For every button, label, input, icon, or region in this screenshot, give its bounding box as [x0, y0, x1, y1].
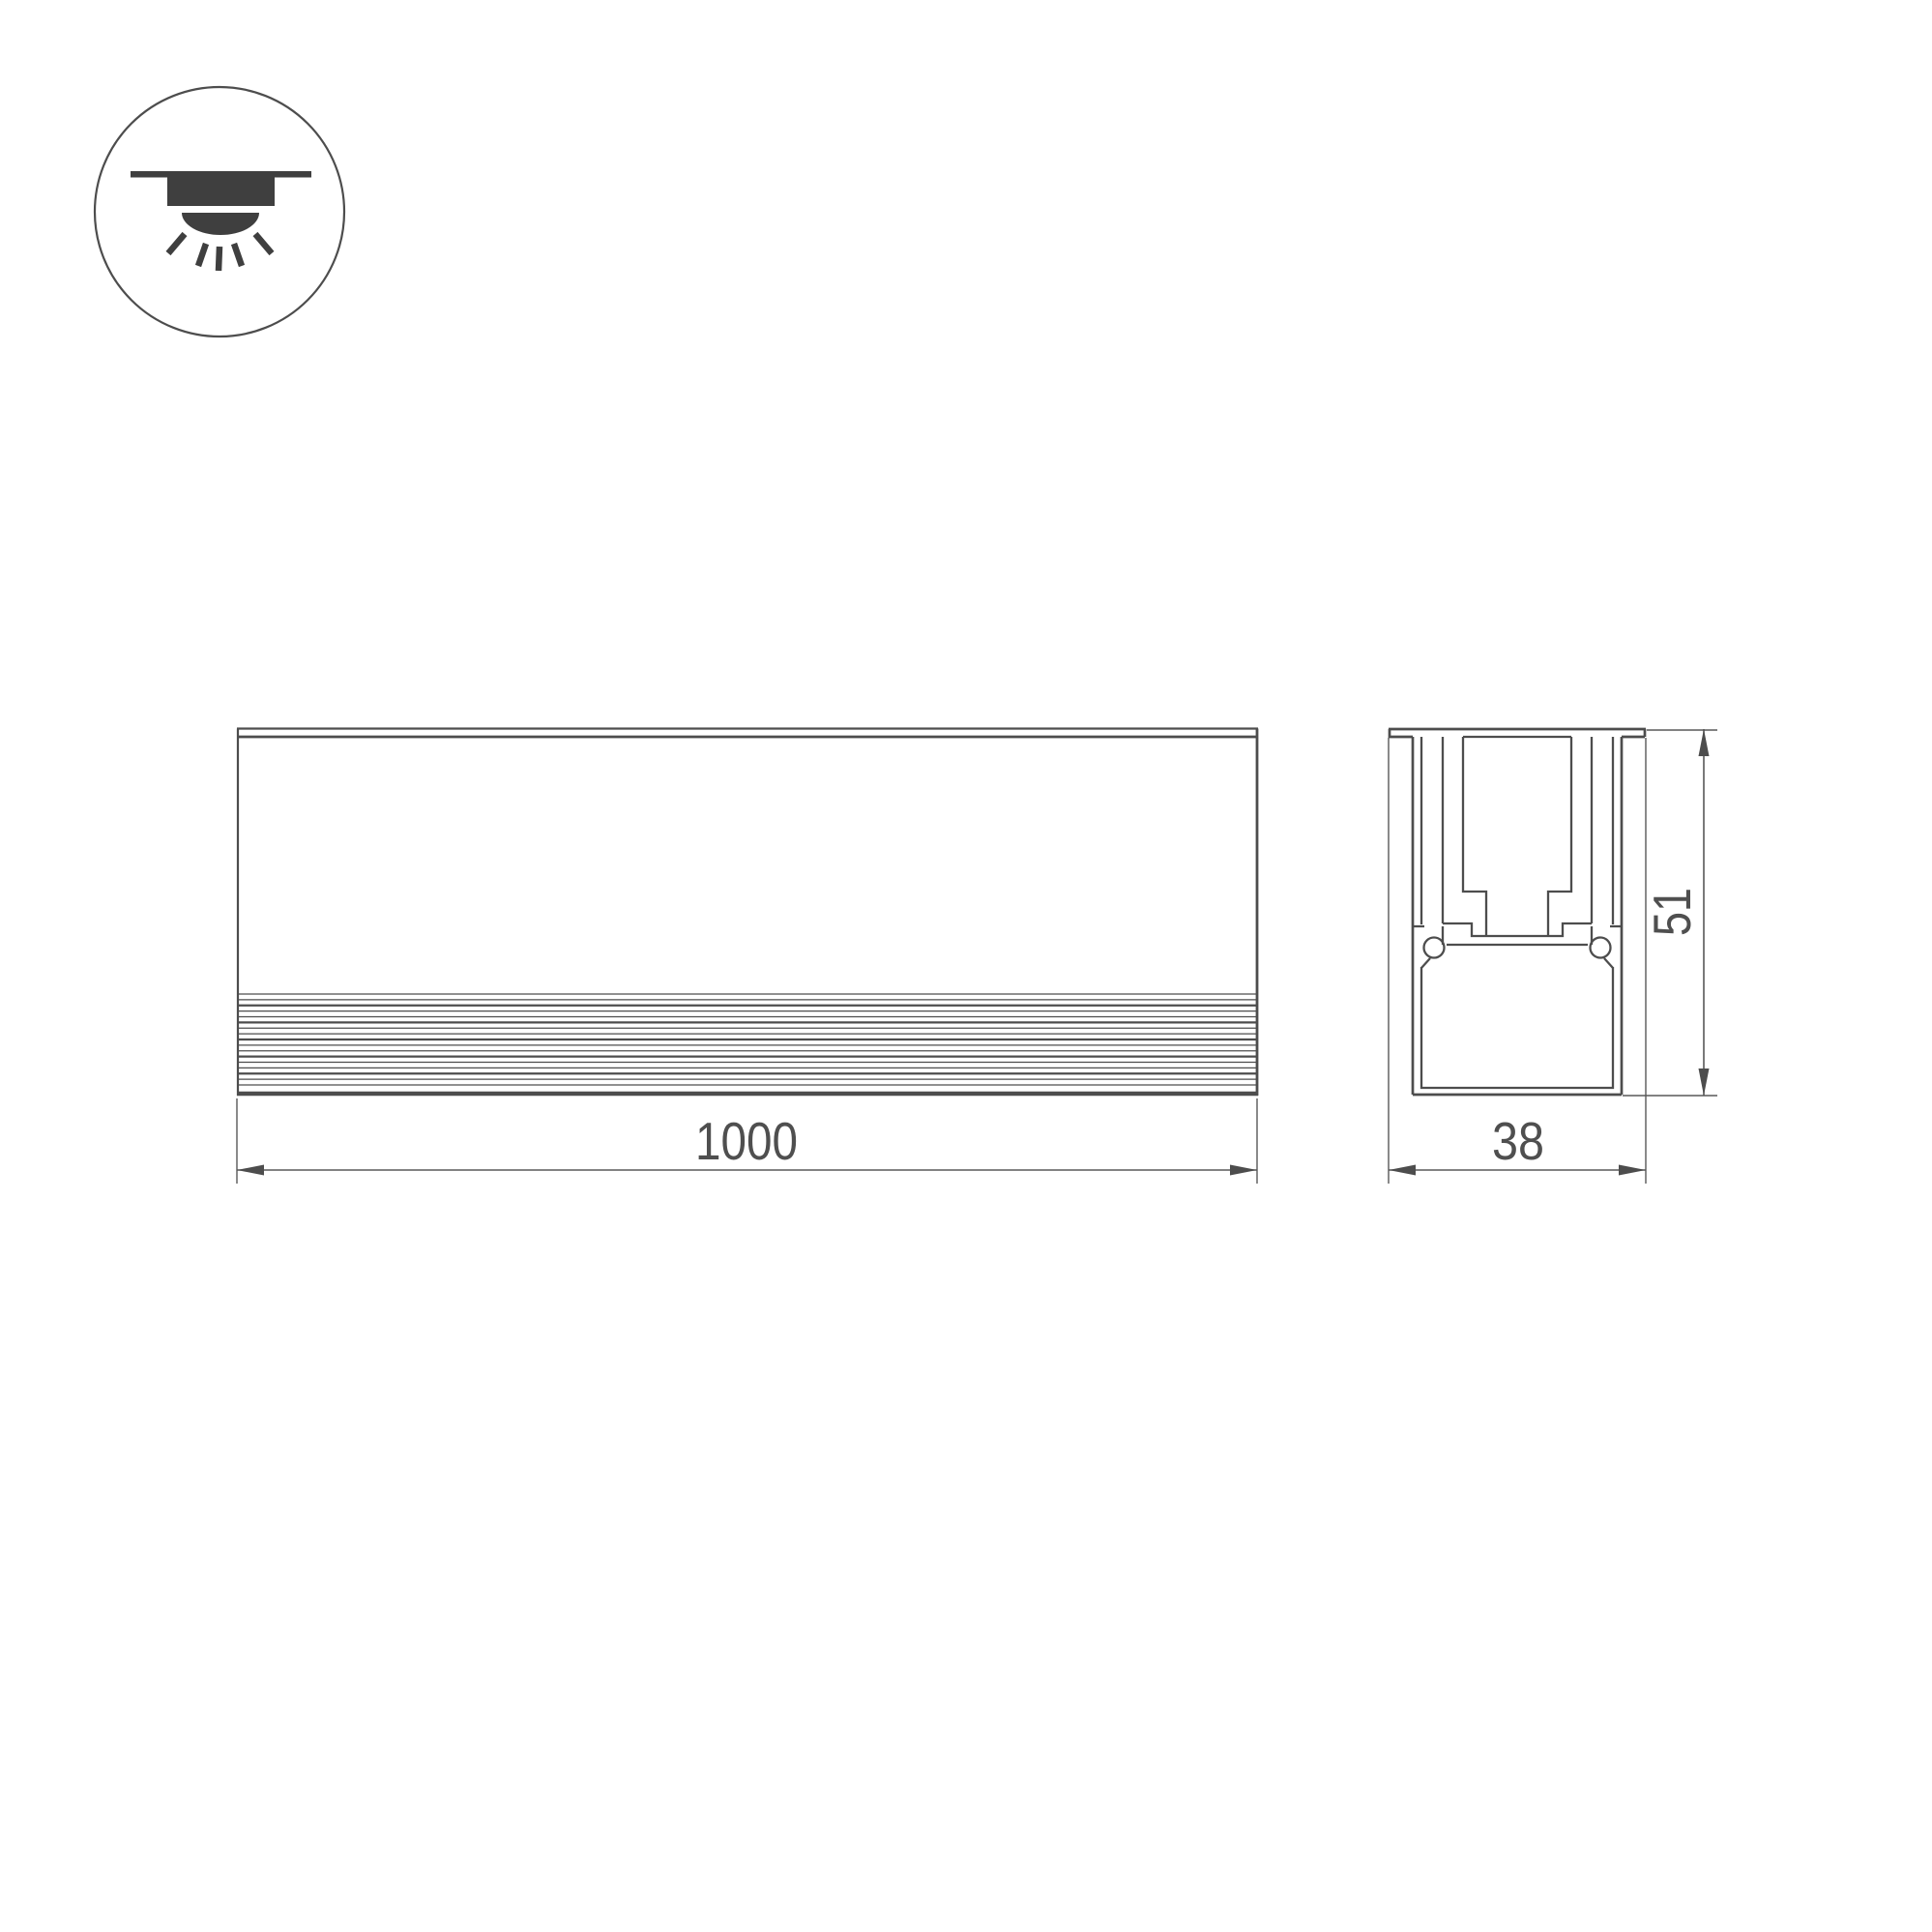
section-inner-structure	[1413, 737, 1622, 1088]
section-clip-notch-right	[1591, 938, 1611, 958]
recessed-downlight-icon	[95, 87, 344, 337]
dimension-length-label: 1000	[695, 1111, 798, 1171]
light-rays	[168, 234, 272, 271]
recessed-housing	[167, 176, 275, 206]
dimension-length-arrow-left	[237, 1165, 264, 1176]
section-clip-notch-left	[1424, 938, 1445, 958]
dimension-length-arrow-right	[1230, 1165, 1257, 1176]
cross-section-view	[1389, 729, 1646, 1095]
dimension-height-label: 51	[1642, 888, 1702, 936]
dimension-width-label: 38	[1492, 1111, 1544, 1171]
lamp-dome	[182, 213, 259, 235]
front-view	[237, 729, 1258, 1097]
section-outer-contour	[1389, 729, 1646, 1095]
drawing-canvas: 1000 38 51	[0, 0, 1932, 1932]
dimension-width-arrow-left	[1389, 1165, 1416, 1176]
dimension-height-arrow-top	[1699, 729, 1710, 756]
dimension-width-arrow-right	[1619, 1165, 1646, 1176]
ribbed-diffuser-lines	[239, 994, 1256, 1085]
icon-circle-border	[95, 87, 344, 337]
dimension-height: 51	[1623, 729, 1717, 1096]
technical-drawing: 1000 38 51	[0, 0, 1932, 1932]
dimension-height-arrow-bottom	[1699, 1068, 1710, 1096]
dimension-length: 1000	[237, 1098, 1257, 1184]
